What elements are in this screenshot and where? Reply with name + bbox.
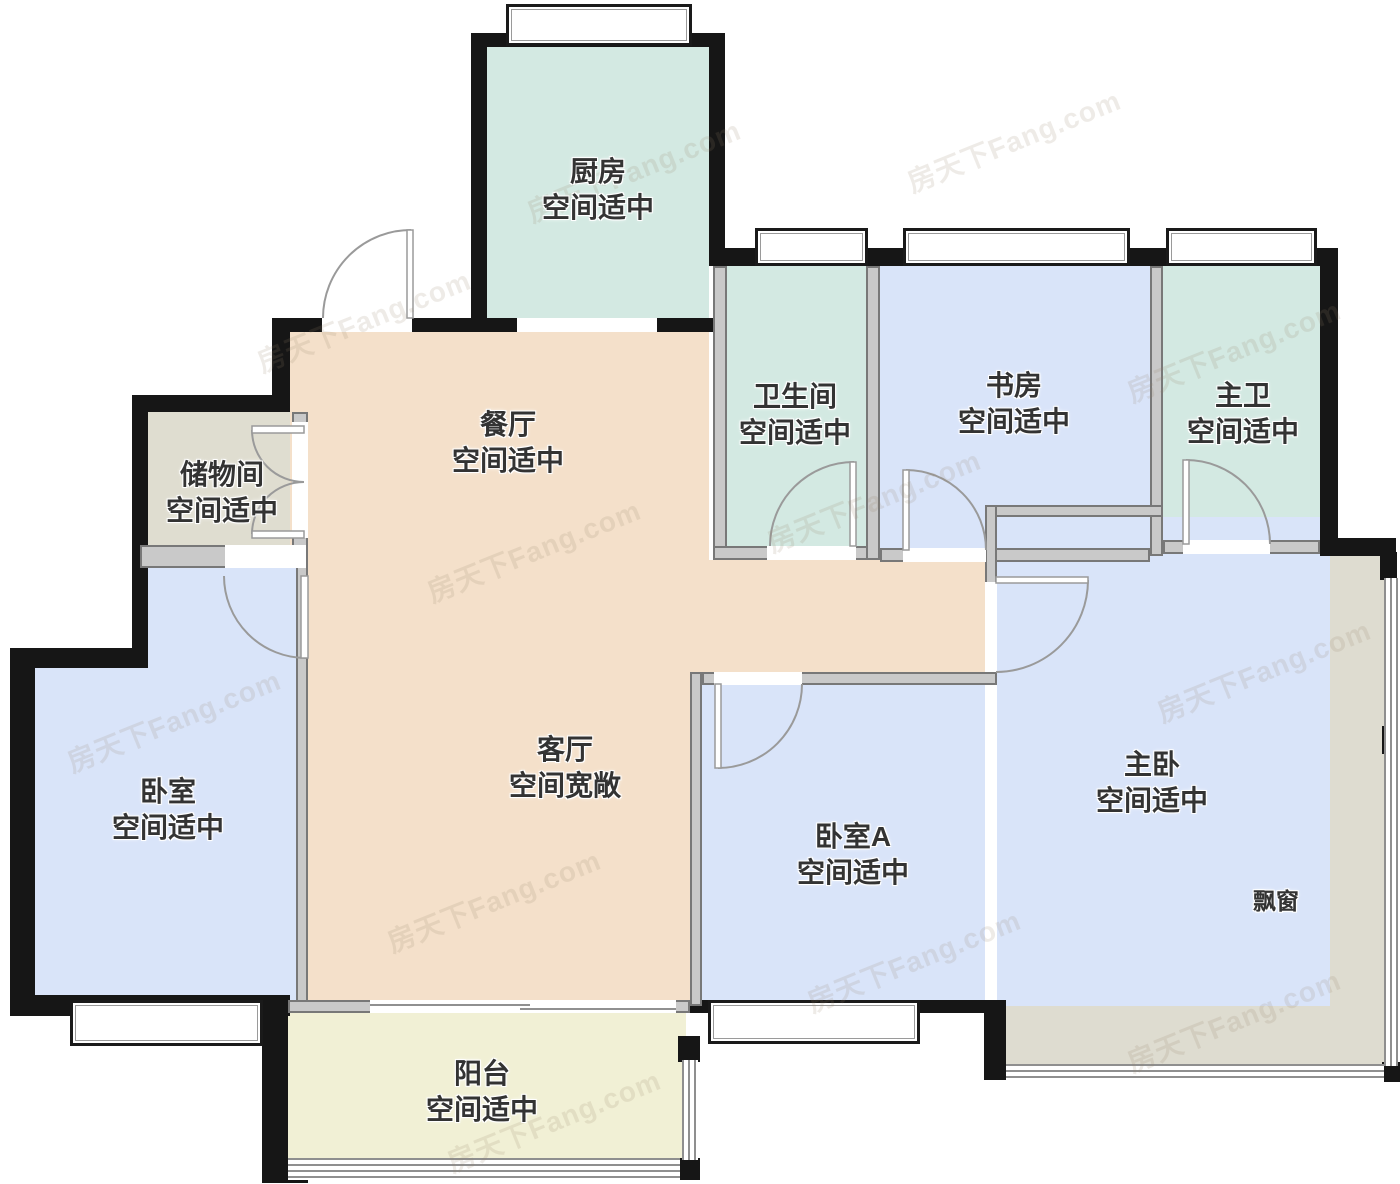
wall-segment: [1320, 248, 1338, 546]
watermark: 房天下Fang.com: [901, 79, 1127, 201]
room-label-kitchen: 厨房空间适中: [542, 154, 654, 226]
room-label-dining: 餐厅空间适中: [452, 407, 564, 479]
bathroom-window: [755, 228, 868, 266]
master-bedroom-opening: [985, 582, 997, 672]
room-label-balcony: 阳台空间适中: [426, 1056, 538, 1128]
room-label-study: 书房空间适中: [958, 368, 1070, 440]
room-label-bathroom: 卫生间空间适中: [739, 379, 851, 451]
bedroom-opening: [225, 545, 306, 568]
bay-window-label: 飘窗: [1253, 887, 1299, 915]
wall-segment: [10, 648, 35, 1016]
storage-opening: [292, 422, 308, 538]
master-bath-opening: [1183, 540, 1270, 554]
room-label-bedroom-a: 卧室A空间适中: [797, 819, 909, 891]
wall-segment: [713, 266, 727, 560]
master-bath-window: [1166, 228, 1317, 266]
room-living-floor: [308, 562, 702, 1006]
bedroom-a-window: [708, 1000, 920, 1044]
bay-window-band-right: [1384, 578, 1398, 1066]
entrance-door-arc: [323, 230, 411, 318]
wall-segment: [1380, 552, 1397, 580]
room-label-bedroom: 卧室空间适中: [112, 774, 224, 846]
wall-segment: [262, 1005, 288, 1183]
wall-segment: [985, 505, 1163, 517]
bay-window-band-bottom: [1006, 1064, 1384, 1082]
bedroom-window: [70, 1000, 263, 1046]
study-opening: [903, 548, 986, 562]
balcony-side-window: [682, 1060, 698, 1160]
bathroom-opening: [767, 546, 856, 560]
wall-segment: [678, 1158, 700, 1180]
room-label-living: 客厅空间宽敞: [509, 732, 621, 804]
entrance-door-leaf: [407, 230, 413, 318]
entrance-opening: [322, 318, 412, 332]
room-bedroom-floor-upper: [148, 568, 296, 668]
bay-window-floor-bottom: [997, 1006, 1384, 1066]
room-label-master-bath: 主卫空间适中: [1187, 378, 1299, 450]
wall-segment: [984, 1000, 1006, 1080]
balcony-window-band: [288, 1158, 680, 1180]
wall-segment: [296, 545, 308, 1006]
sliding-door-leaf: [370, 1004, 530, 1006]
balcony-sliding-door: [370, 1000, 676, 1013]
room-label-storage: 储物间空间适中: [166, 457, 278, 529]
floorplan: 房天下Fang.com 房天下Fang.com 房天下Fang.com 房天下F…: [0, 0, 1400, 1184]
bedroom-a-opening: [714, 672, 802, 685]
study-window: [903, 228, 1130, 266]
wall-segment: [866, 266, 880, 560]
wall-segment: [690, 672, 702, 1006]
wall-segment: [709, 33, 725, 250]
wall-segment: [678, 1036, 700, 1062]
wall-segment: [132, 395, 148, 665]
kitchen-window: [506, 4, 692, 46]
room-label-master-bedroom: 主卧空间适中: [1096, 747, 1208, 819]
kitchen-opening: [517, 318, 657, 332]
wall-segment: [132, 395, 290, 412]
sliding-door-leaf: [520, 1008, 676, 1010]
hallway-floor: [702, 560, 985, 685]
wall-segment: [471, 33, 487, 332]
bay-window-floor-right: [1330, 556, 1384, 1066]
